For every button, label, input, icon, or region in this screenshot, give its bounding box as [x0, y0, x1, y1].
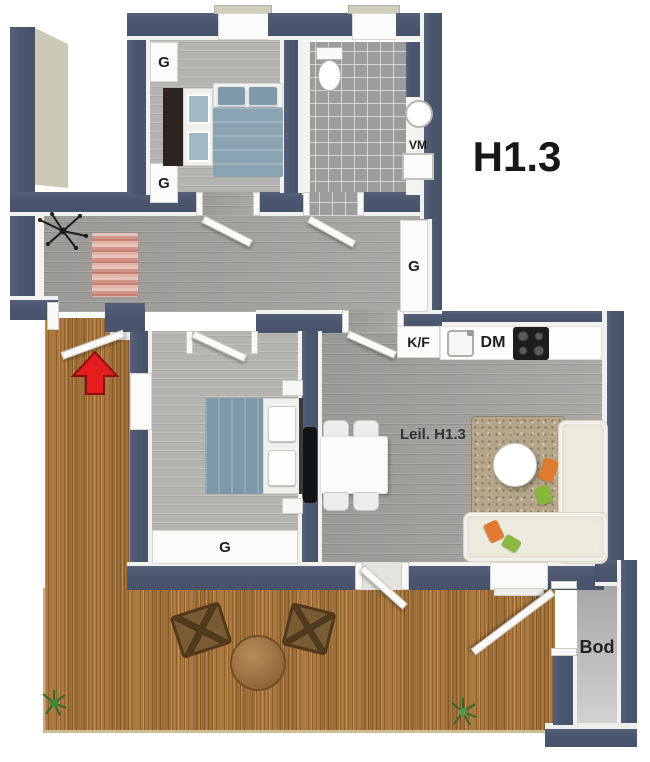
closet-label: G: [408, 258, 420, 275]
dining-chair: [323, 492, 349, 511]
wall: [617, 560, 637, 747]
hall-rug: [92, 233, 138, 297]
wall-face: [35, 28, 68, 188]
door-opening: [306, 192, 360, 216]
wall: [127, 13, 150, 195]
storage-box: [187, 94, 210, 124]
washing-machine: [402, 153, 434, 180]
door-frame: [551, 581, 577, 589]
floor-plan: G G VM G K/F DM: [0, 0, 650, 762]
closet-label: G: [219, 539, 231, 556]
closet: G: [150, 163, 178, 203]
wall: [553, 653, 577, 725]
bed-duvet: [213, 107, 283, 177]
fridge-freezer: K/F: [397, 326, 440, 358]
unit-label-text: H1.3: [473, 133, 562, 181]
bed-headboard: [299, 398, 303, 494]
window: [352, 13, 398, 40]
storage-label-text: Bod: [580, 637, 615, 658]
door-frame: [196, 192, 203, 216]
unit-label: H1.3: [452, 130, 582, 184]
wall: [442, 311, 602, 326]
door-frame: [342, 310, 349, 333]
bed-pillow: [268, 406, 296, 442]
door-frame: [551, 648, 577, 656]
sofa: [463, 512, 608, 562]
living-label-text: Leil. H1.3: [400, 426, 466, 443]
storage-label: Bod: [575, 636, 619, 658]
bed-pillow: [248, 86, 278, 106]
washing-machine-label: VM: [400, 138, 436, 152]
toilet-tank: [316, 47, 343, 60]
wall: [280, 40, 302, 193]
door-frame: [251, 331, 258, 354]
toilet-bowl: [318, 60, 341, 91]
tv: [303, 427, 317, 503]
plant-icon: [40, 688, 68, 718]
faucet: [467, 330, 474, 336]
door-opening: [346, 310, 400, 333]
coffee-table: [493, 443, 537, 487]
wall: [268, 13, 354, 40]
entrance-arrow-icon: [70, 350, 120, 398]
wall: [256, 192, 306, 216]
wall: [10, 27, 35, 319]
closet: G: [150, 42, 178, 82]
closet: G: [152, 530, 298, 564]
bed-duvet: [205, 398, 263, 494]
nightstand: [282, 498, 303, 514]
wall-face: [302, 42, 310, 195]
coat-rack-icon: [36, 210, 90, 252]
washbasin: [405, 100, 433, 128]
window: [218, 13, 270, 40]
door-frame: [253, 192, 260, 216]
wall: [127, 13, 220, 40]
door-opening: [200, 192, 256, 216]
window: [490, 562, 548, 590]
closet-label: G: [158, 54, 170, 71]
window: [130, 373, 152, 430]
wall: [105, 303, 145, 332]
wall: [127, 562, 360, 590]
window-sill: [494, 588, 544, 596]
outdoor-table: [230, 635, 286, 691]
wall: [256, 310, 346, 333]
wall: [405, 562, 490, 590]
wall: [130, 331, 152, 565]
closet-label: G: [158, 175, 170, 192]
cooktop: [513, 327, 549, 360]
door-frame: [401, 562, 409, 590]
wardrobe: [163, 88, 183, 166]
wall: [545, 723, 637, 747]
dining-chair: [353, 492, 379, 511]
nightstand: [282, 380, 303, 396]
dm-text: DM: [481, 334, 506, 352]
bed-pillow: [268, 450, 296, 486]
bed-pillow: [217, 86, 246, 106]
dishwasher-label: DM: [476, 332, 510, 354]
living-room-label: Leil. H1.3: [400, 426, 520, 444]
wall: [406, 42, 420, 97]
storage-box: [187, 131, 210, 162]
closet: G: [400, 220, 428, 312]
vm-text: VM: [409, 138, 427, 152]
kf-text: K/F: [407, 334, 430, 350]
door-frame: [47, 302, 59, 330]
plant-icon: [448, 696, 478, 728]
door-frame: [303, 192, 310, 216]
door-frame: [357, 192, 364, 216]
dining-table: [320, 436, 388, 494]
